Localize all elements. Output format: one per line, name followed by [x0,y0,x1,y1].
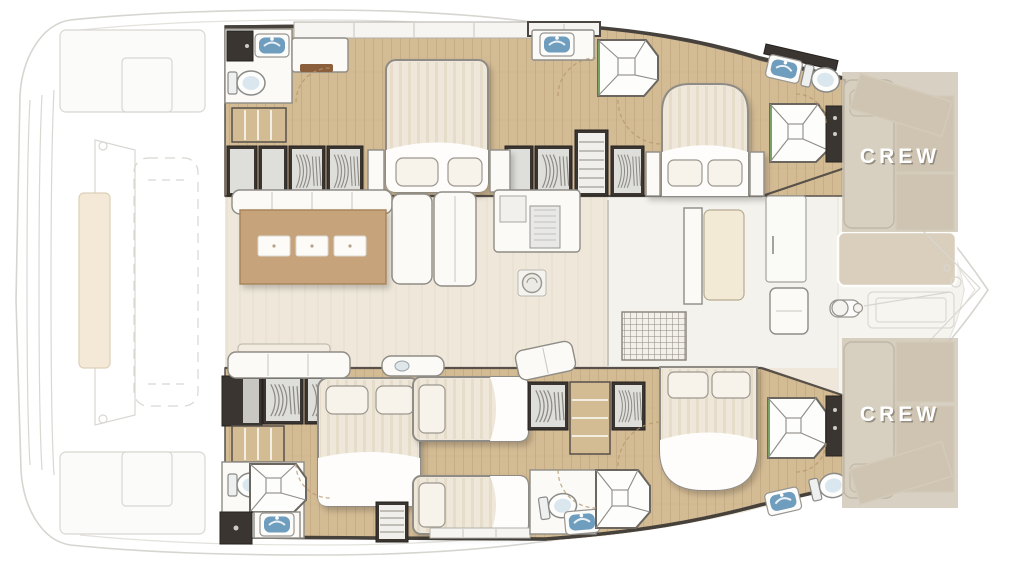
crew-label-bottom: CREW CREW [860,403,942,428]
locker [227,31,253,61]
shelf-unit [570,382,610,454]
bow-panel [868,292,954,328]
sink-icon [255,34,289,57]
top-hull [225,22,845,196]
bathroom-top-aft [225,29,292,103]
galley-counter [494,190,580,252]
bathroom-bottom-fwd [764,396,850,516]
cockpit-bench [684,208,702,304]
staircase-bottom [376,502,408,542]
bow-sunpad [838,232,956,286]
sink-icon [564,509,600,535]
shower-icon [598,40,658,96]
floor-hatch [518,270,546,296]
shower-icon [770,104,828,162]
shelf-unit [232,108,286,142]
door [766,196,806,282]
double-bed-top-aft [368,60,510,192]
cabinet-strip [430,528,530,538]
bathroom-bottom-mid [530,470,650,535]
single-berth-lower [413,476,528,534]
cabinet-strip [294,22,534,38]
shower-icon [250,464,306,512]
floorplan: CREW CREW CREW CREW [0,0,1024,565]
staircase-top [575,130,608,196]
single-berth-upper [413,377,528,441]
tender-platform [79,193,110,368]
crew-label-top: CREW CREW [860,145,942,170]
sink-icon [260,513,294,536]
deck-hatch [622,312,686,360]
svg-text:CREW: CREW [860,403,940,426]
double-bed-top-fwd [646,84,764,196]
bathroom-bottom-aft [220,462,306,544]
toilet-icon [228,71,265,95]
shower-icon [768,398,826,458]
bench-cushion [704,210,744,300]
crew-quarters-bottom: CREW CREW [842,338,958,508]
bottom-hull [220,367,850,544]
sink-icon [540,33,574,56]
double-bed-bottom-aft [318,378,420,506]
crew-quarters-top: CREW CREW [842,72,958,232]
shower-icon [596,470,650,528]
coffee-table [382,356,444,376]
svg-text:CREW: CREW [860,145,940,168]
double-bed-bottom-fwd [660,367,757,490]
shelf-unit [232,426,284,462]
salon-table [240,210,386,284]
desk [292,38,348,72]
